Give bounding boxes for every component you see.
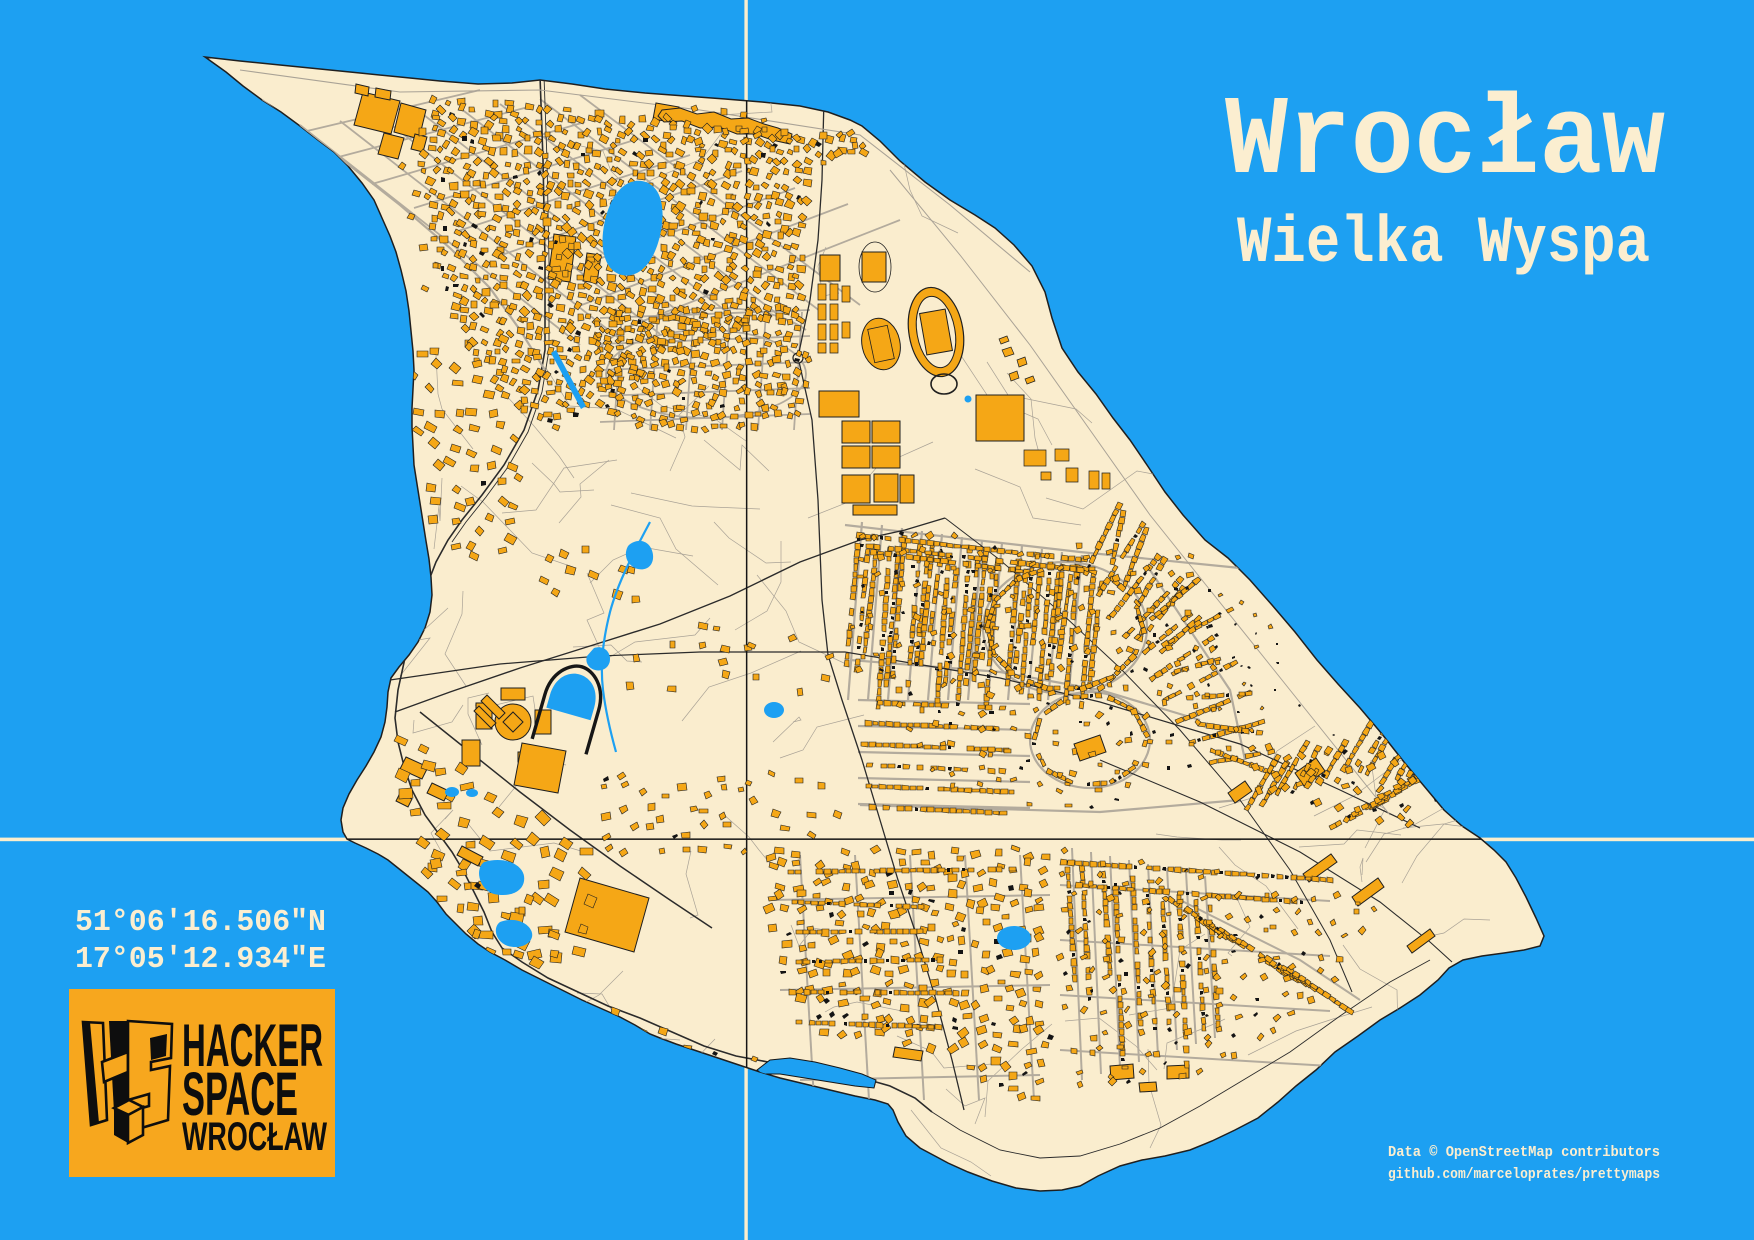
svg-text:Data © OpenStreetMap contribut: Data © OpenStreetMap contributors: [1388, 1145, 1660, 1161]
svg-text:WROCŁAW: WROCŁAW: [182, 1115, 327, 1159]
svg-text:Wielka Wyspa: Wielka Wyspa: [1237, 206, 1650, 281]
svg-text:51°06′16.506″N: 51°06′16.506″N: [75, 905, 326, 940]
svg-text:Wrocław: Wrocław: [1225, 79, 1665, 206]
svg-text:github.com/marceloprates/prett: github.com/marceloprates/prettymaps: [1388, 1167, 1660, 1183]
svg-text:17°05′12.934″E: 17°05′12.934″E: [75, 942, 326, 977]
